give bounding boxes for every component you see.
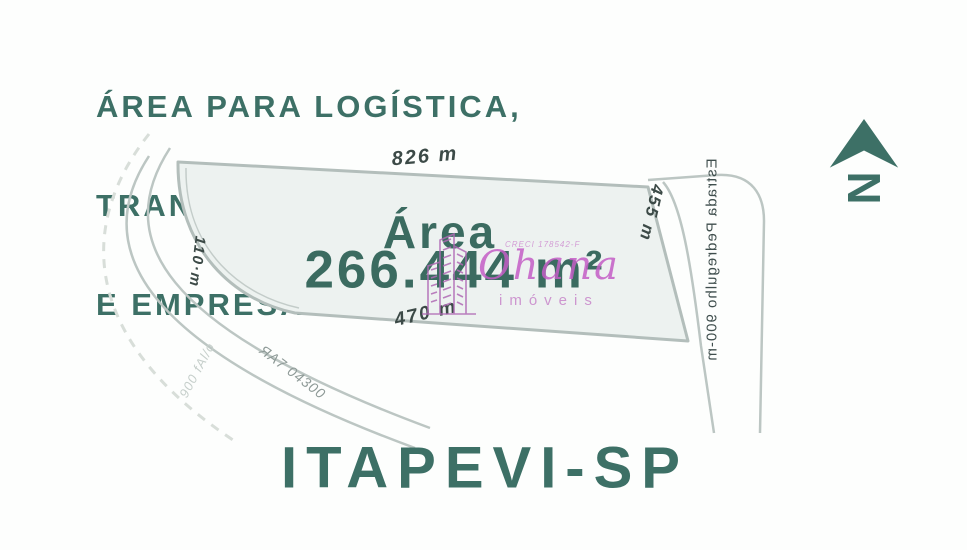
road-right-label: Estrada Pedregulho 900-m [704, 158, 721, 361]
ohana-building-icon [420, 232, 478, 316]
flyer-canvas: ÁREA PARA LOGÍSTICA, TRANSPORTADORA E EM… [0, 0, 967, 550]
watermark-subtitle: imóveis [499, 292, 599, 309]
north-arrow-icon [828, 118, 900, 174]
watermark-brand: Ohana [478, 243, 620, 289]
north-letter: N [837, 171, 891, 204]
city-title: ITAPEVI-SP [281, 435, 689, 502]
